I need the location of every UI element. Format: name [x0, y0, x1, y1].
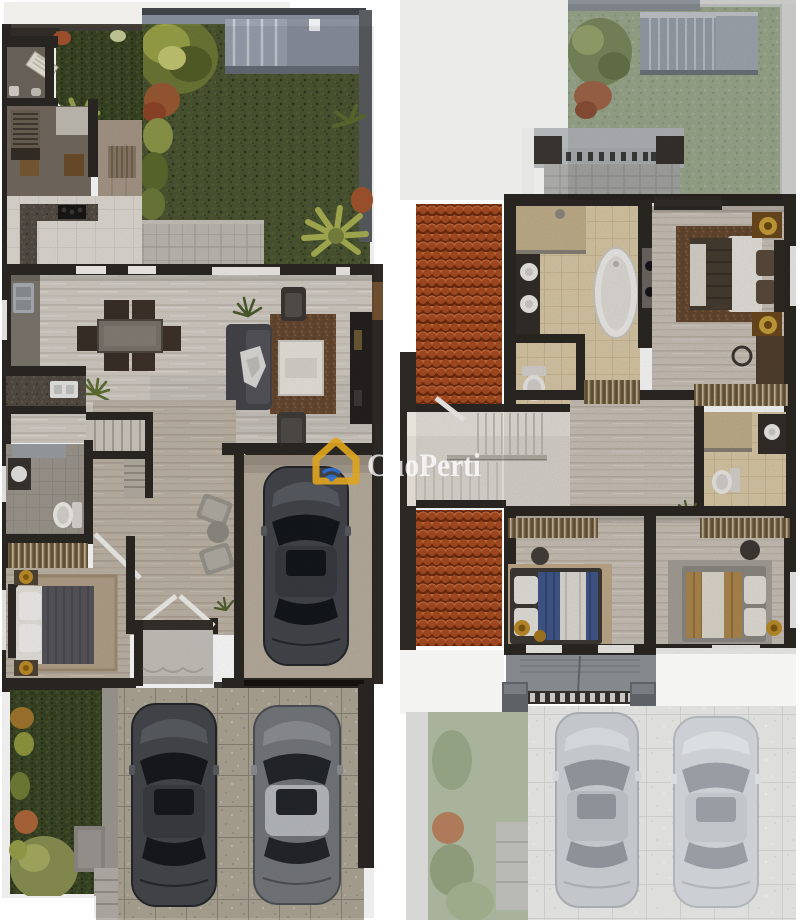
svg-text:CuoPerti: CuoPerti	[367, 448, 481, 484]
